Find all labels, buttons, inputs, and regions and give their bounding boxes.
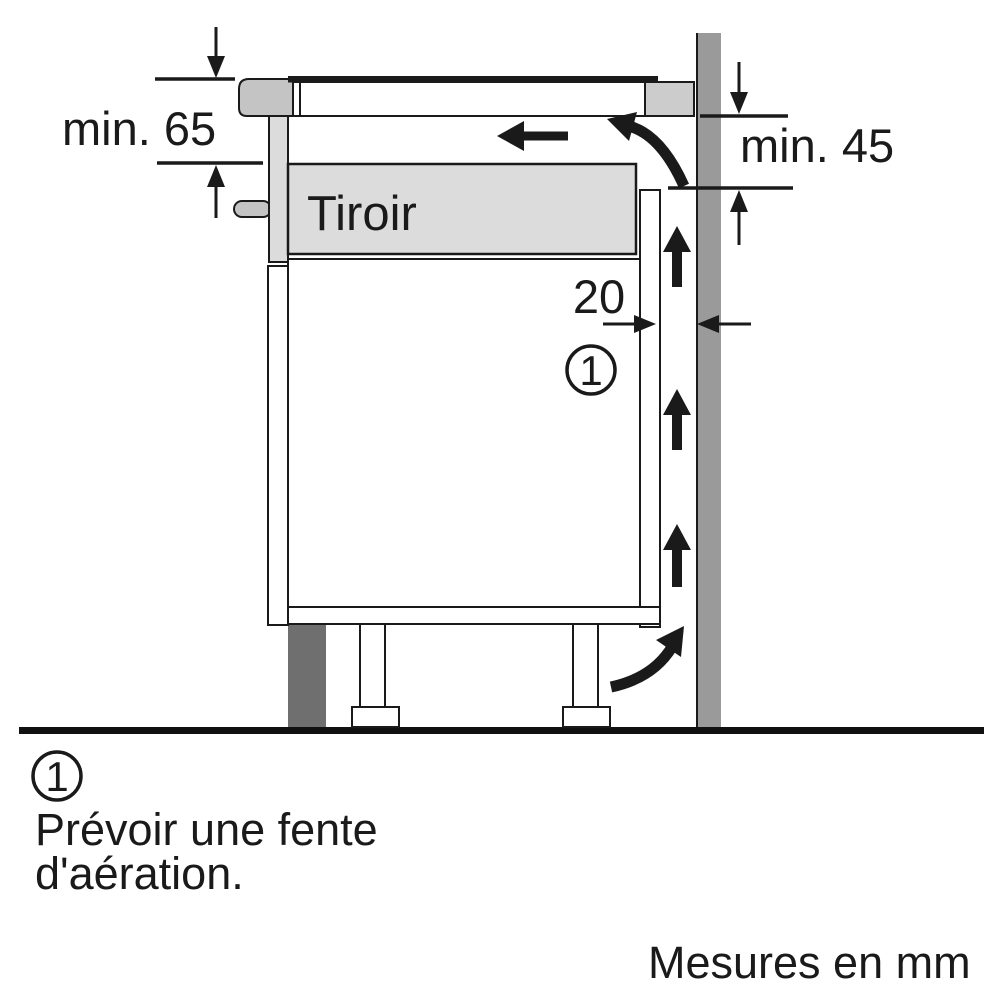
installation-diagram-page: Tiroir min. 65 min. 45 20 xyxy=(0,0,1000,1000)
dim-arrow-up-head xyxy=(207,165,225,187)
hob-glass-top xyxy=(288,76,658,83)
footnote-line-2: d'aération. xyxy=(35,848,244,899)
hob-body xyxy=(293,82,645,116)
arrow-head xyxy=(663,524,691,550)
worktop-section xyxy=(645,82,694,116)
cabinet-bottom-panel xyxy=(288,607,660,624)
airflow-up-arrow-1 xyxy=(663,226,691,287)
dimension-clearance-top: min. 65 xyxy=(62,27,263,218)
leg-stem xyxy=(360,624,385,708)
hob-front-trim xyxy=(239,79,293,116)
drawer-handle xyxy=(234,201,271,217)
arrow-curve xyxy=(611,647,672,687)
cabinet-left-panel xyxy=(268,266,288,625)
drawer-front-panel xyxy=(269,116,288,262)
dim-arrow-down-head xyxy=(730,92,748,114)
units-note: Mesures en mm xyxy=(648,937,971,988)
arrow-head xyxy=(663,389,691,415)
footnote-marker-number: 1 xyxy=(45,753,68,800)
arrow-curve xyxy=(632,127,684,186)
drawer-label: Tiroir xyxy=(307,187,417,241)
dim-arrow-down-head xyxy=(207,56,225,78)
clearance-top-label: min. 65 xyxy=(62,102,216,155)
wall xyxy=(696,33,721,727)
cabinet-leg-left xyxy=(352,624,399,727)
leg-foot xyxy=(563,707,610,727)
airflow-curved-arrow-bottom xyxy=(611,626,684,687)
leg-stem xyxy=(573,624,598,708)
arrow-head xyxy=(663,226,691,252)
arrow-shaft xyxy=(672,413,682,450)
installation-diagram: Tiroir min. 65 min. 45 20 xyxy=(0,0,1000,1000)
airflow-left-arrow xyxy=(497,121,568,151)
gap-label: 20 xyxy=(573,270,625,323)
airflow-up-arrow-2 xyxy=(663,389,691,450)
clearance-right-label: min. 45 xyxy=(740,119,894,172)
callout-1-number: 1 xyxy=(579,347,602,394)
footnote: 1 Prévoir une fente d'aération. xyxy=(33,752,378,899)
cabinet-leg-right xyxy=(563,624,610,727)
floor-line xyxy=(19,727,984,734)
arrow-head xyxy=(497,121,524,151)
arrow-shaft xyxy=(672,548,682,587)
leg-foot xyxy=(352,707,399,727)
plinth xyxy=(288,625,326,727)
arrow-shaft xyxy=(522,132,568,141)
arrow-shaft xyxy=(672,250,682,287)
dim-arrow-up-head xyxy=(730,190,748,212)
airflow-up-arrow-3 xyxy=(663,524,691,587)
cabinet-right-panel xyxy=(640,190,660,627)
